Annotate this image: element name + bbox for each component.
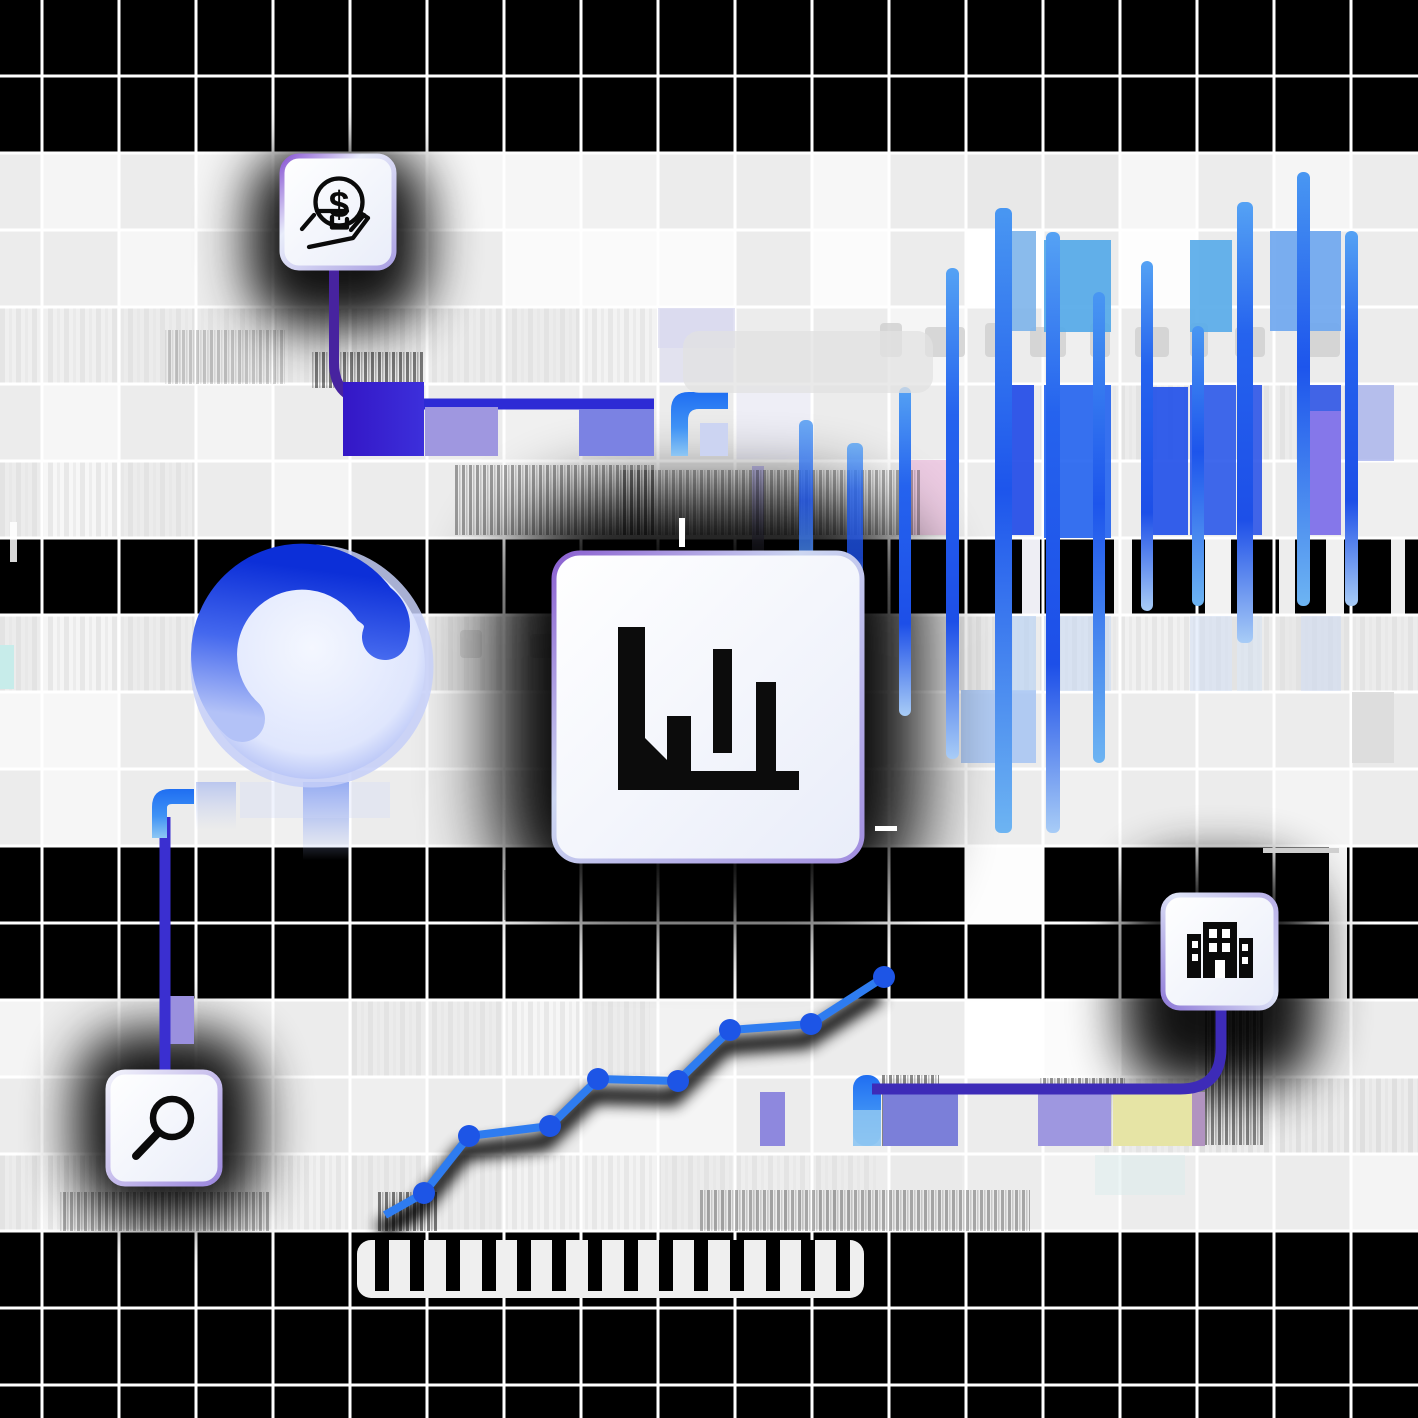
svg-text:$: $ bbox=[329, 184, 350, 225]
